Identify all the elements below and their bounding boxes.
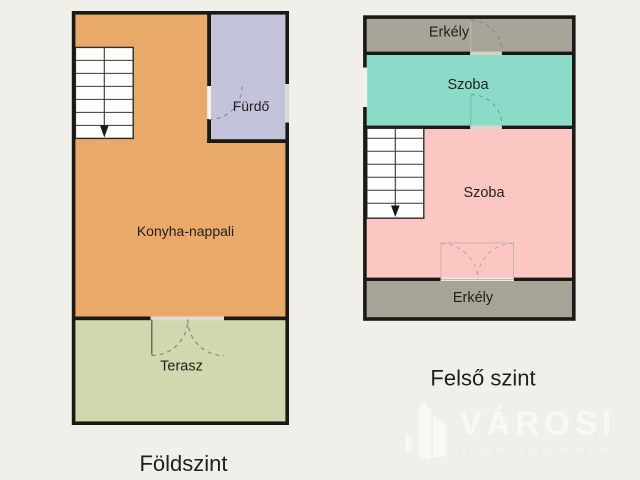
svg-text:INGATLANIRODA: INGATLANIRODA [462,445,613,456]
svg-text:Szoba: Szoba [463,185,505,201]
svg-text:Szoba: Szoba [447,77,489,93]
svg-text:Erkély: Erkély [453,290,494,306]
svg-text:Felső szint: Felső szint [430,366,535,391]
svg-text:Erkély: Erkély [429,25,470,41]
svg-text:Konyha-nappali: Konyha-nappali [137,223,234,239]
svg-text:Földszint: Földszint [139,451,227,476]
svg-text:VÁROSI: VÁROSI [460,405,617,442]
svg-text:Fürdő: Fürdő [233,98,270,114]
svg-text:Terasz: Terasz [160,359,203,375]
